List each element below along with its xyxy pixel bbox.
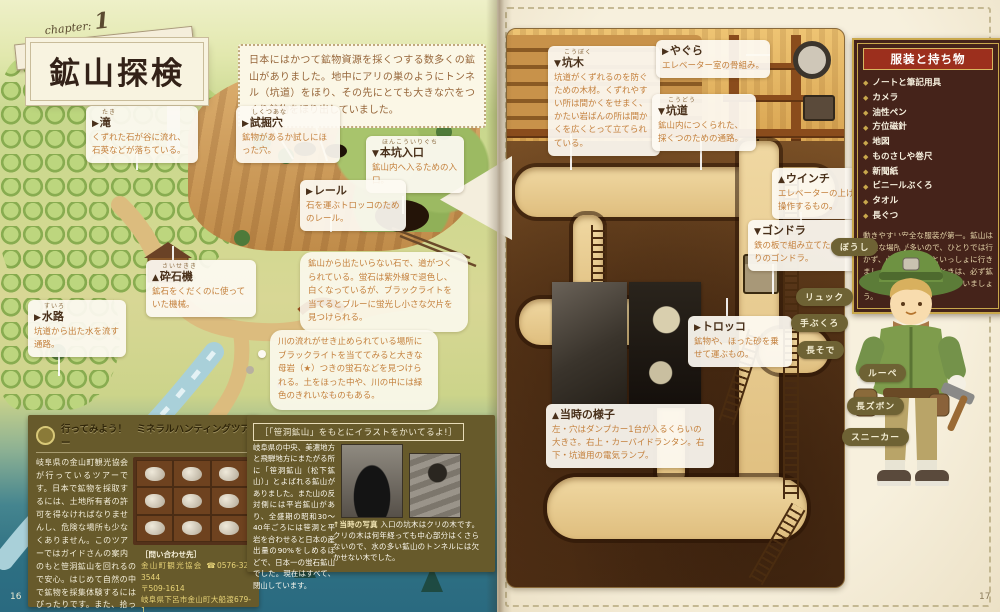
list-item: ◆長ぐつ — [863, 209, 993, 224]
page-title: 鉱山探検 — [30, 42, 204, 101]
leader-line — [172, 246, 174, 260]
marker-icon: ▼ — [754, 227, 761, 237]
marker-icon: ▼ — [658, 107, 665, 117]
page-number-right: 17 — [979, 592, 990, 602]
callout-test-pit: しくつあな ▶試掘穴 鉱物があるか試しにほった穴。 — [236, 106, 340, 163]
list-item: ◆方位磁針 — [863, 120, 993, 135]
chapter-number: 1 — [93, 7, 111, 34]
marker-icon: ▶ — [34, 313, 41, 323]
outfit-label-hat: ぼうし — [831, 238, 878, 256]
photo-caption-box: ▲当時の様子 左・穴はダンプカー1台が入るくらいの大きさ。右上・カーバイドランタ… — [546, 404, 714, 468]
callout-waterway: すいろ ▶水路 坑道から出た水を流す通路。 — [28, 300, 126, 357]
callout-crusher: さいせきき ▲砕石機 鉱石をくだくのに使っていた機械。 — [146, 260, 256, 317]
outfit-label-long-pants: 長ズボン — [847, 397, 904, 415]
diamond-bullet-icon: ◆ — [863, 122, 868, 134]
note-fluorite-road: 鉱山から出たいらない石で、道がつくられている。蛍石は紫外線で退色し、白くなってい… — [300, 252, 468, 332]
callout-rail: ▶レール 石を運ぶトロッコのためのレール。 — [300, 180, 406, 231]
contact-info: ［問い合わせ先］ 金山町観光協会 ☎0576-32-3544 〒509-1614… — [141, 549, 251, 612]
page-number-left: 16 — [10, 592, 21, 602]
winch-machine — [803, 95, 835, 121]
list-item: ◆地図 — [863, 135, 993, 150]
list-item: ◆カメラ — [863, 91, 993, 106]
contact-address: 岐阜県下呂市金山町大船渡679-1 — [141, 595, 251, 612]
callout-timbering: こうぼく ▼坑木 坑道がくずれるのを防ぐための木材。くずれやすい所は間かくをせま… — [548, 46, 660, 156]
callout-trolley: ▶トロッコ 鉱物や、ほった砂を乗せて運ぶもの。 — [688, 316, 792, 367]
miner-photo — [409, 453, 461, 518]
diamond-bullet-icon: ◆ — [863, 107, 868, 119]
outfit-label-long-sleeves: 長そで — [797, 341, 844, 359]
explorer-illustration — [833, 242, 993, 510]
diamond-bullet-icon: ◆ — [863, 181, 868, 193]
diamond-bullet-icon: ◆ — [863, 137, 868, 149]
gear-item-list: ◆ノートと筆記用具 ◆カメラ ◆油性ペン ◆方位磁針 ◆地図 ◆ものさしや巻尺 … — [863, 76, 993, 224]
sasabora-caption: ↑当時の写真 入口の坑木はクリの木です。クリの木は何年経っても中心部分はくさらな… — [333, 519, 479, 563]
marker-icon: ▶ — [306, 187, 313, 197]
marker-icon: ▶ — [92, 119, 99, 129]
tour-info-box: 行ってみよう！ ミネラルハンティングツアー ［問い合わせ先］ 金山町観光協会 ☎… — [28, 415, 259, 607]
marker-icon: ▲ — [152, 273, 159, 283]
gear-box-title: 服装と持ち物 — [863, 48, 993, 70]
pickaxe-badge-icon — [36, 426, 55, 445]
marker-icon: ▶ — [242, 119, 249, 129]
callout-waterfall: たき ▶滝 くずれた石が谷に流れ、石英などが落ちている。 — [86, 106, 198, 163]
callout-headframe: ▶やぐら エレベーター室の骨組み。 — [656, 40, 770, 78]
diamond-bullet-icon: ◆ — [863, 77, 868, 89]
specimen-box-photo — [133, 457, 251, 545]
outfit-label-loupe: ルーペ — [859, 364, 906, 382]
sasabora-info-box: ［「笹洞鉱山」をもとにイラストをかいてるよ!］ 岐阜県の中央、美濃地方と飛騨地方… — [247, 415, 495, 572]
marker-icon: ▲ — [552, 411, 559, 421]
mine-entrance-photo — [341, 444, 403, 518]
list-item: ◆ものさしや巻尺 — [863, 150, 993, 165]
sasabora-text: 岐阜県の中央、美濃地方と飛騨地方にまたがる所に「笹洞鉱山（松下鉱山）」とよばれる… — [253, 442, 335, 591]
outfit-label-sneakers: スニーカー — [842, 428, 909, 446]
diamond-bullet-icon: ◆ — [863, 210, 868, 222]
list-item: ◆新聞紙 — [863, 165, 993, 180]
tour-header: 行ってみよう！ ミネラルハンティングツアー — [36, 421, 251, 453]
contact-postal: 〒509-1614 — [141, 584, 185, 593]
contact-org: 金山町観光協会 — [141, 561, 203, 570]
diamond-bullet-icon: ◆ — [863, 166, 868, 178]
tour-body: ［問い合わせ先］ 金山町観光協会 ☎0576-32-3544 〒509-1614… — [36, 457, 251, 612]
callout-gallery: こうどう ▼坑道 鉱山内につくられた、採くつのための通路。 — [652, 94, 756, 151]
outfit-label-backpack: リュック — [796, 288, 853, 306]
list-item: ◆タオル — [863, 194, 993, 209]
note-river-fluorite: 川の流れがせき止められている場所にブラックライトを当ててみると大きな母岩（★）つ… — [270, 330, 438, 410]
list-item: ◆油性ペン — [863, 106, 993, 121]
marker-icon: ▼ — [372, 149, 379, 159]
diamond-bullet-icon: ◆ — [863, 151, 868, 163]
pulley-wheel-icon — [793, 41, 831, 79]
diamond-bullet-icon: ◆ — [863, 92, 868, 104]
marker-icon: ▼ — [554, 59, 561, 69]
diamond-bullet-icon: ◆ — [863, 196, 868, 208]
marker-icon: ▶ — [662, 47, 669, 57]
marker-icon: ▶ — [694, 323, 701, 333]
bubble-tail-dot — [258, 350, 266, 358]
leader-line — [726, 298, 728, 316]
marker-icon: ▲ — [778, 175, 785, 185]
book-spread: chapter: 1 鉱 物 を 知 ろ う 鉱山探検 日本にはかつて鉱物資源を… — [0, 0, 1000, 612]
mine-interior-photo — [552, 282, 627, 408]
list-item: ◆ビニールぶくろ — [863, 179, 993, 194]
bottom-cavern — [547, 477, 807, 539]
outfit-label-gloves: 手ぶくろ — [791, 314, 848, 332]
sasabora-header: ［「笹洞鉱山」をもとにイラストをかいてるよ!］ — [253, 423, 464, 441]
list-item: ◆ノートと筆記用具 — [863, 76, 993, 91]
